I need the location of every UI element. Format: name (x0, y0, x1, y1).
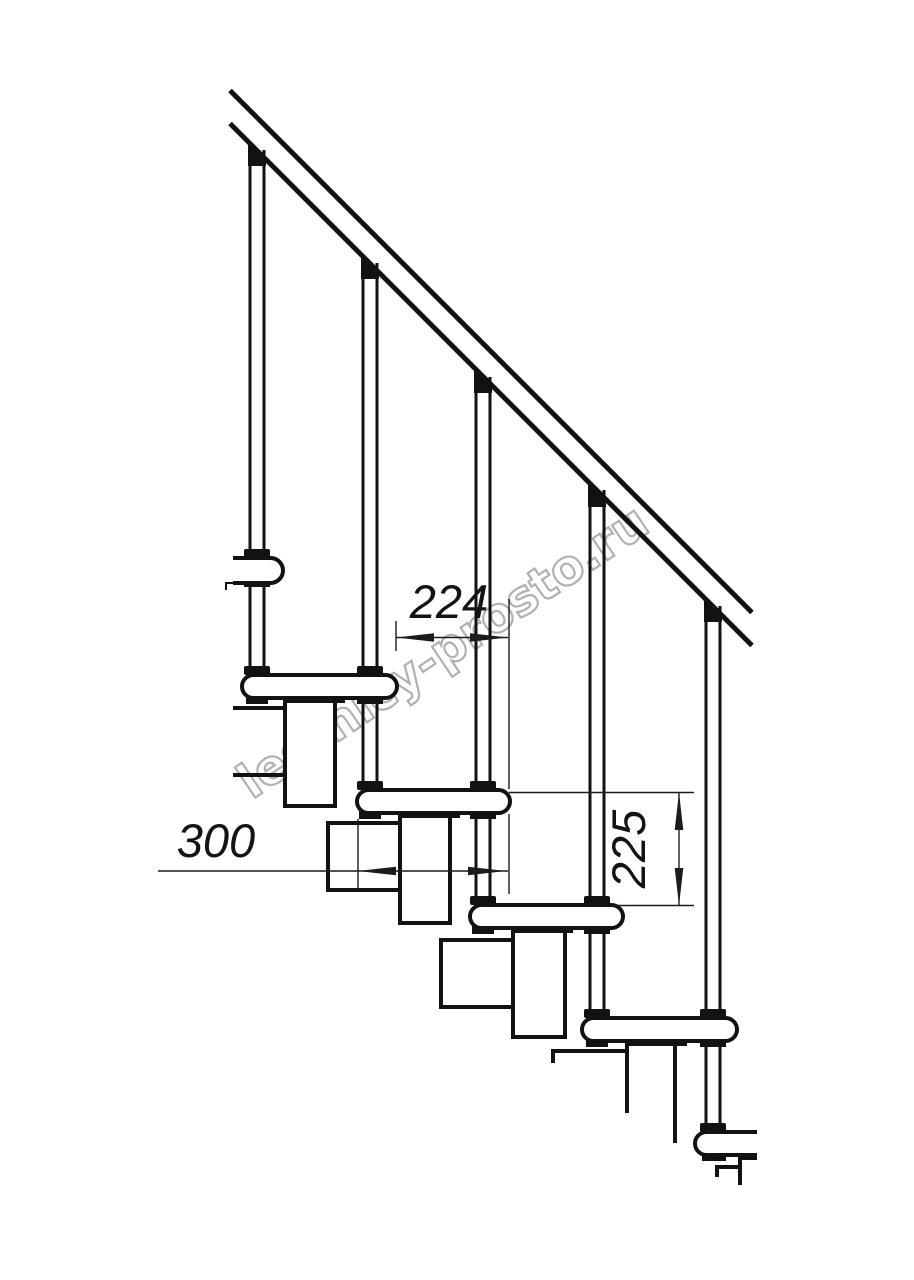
mount-mark (700, 1040, 726, 1047)
mount-mark (627, 1039, 687, 1046)
support-rod (590, 928, 604, 1009)
collar (700, 1009, 726, 1018)
mount-mark (470, 812, 496, 819)
collar (244, 549, 270, 558)
dimension-225: 225 (509, 793, 694, 906)
collar (357, 666, 383, 675)
mount-mark (402, 811, 460, 818)
collar (470, 781, 496, 790)
mount-mark (244, 581, 270, 587)
baluster-2 (363, 263, 377, 666)
tread (470, 905, 623, 928)
mount-mark (357, 697, 383, 704)
mount-mark (515, 926, 573, 933)
drawing-canvas: lestnicy-prosto.ru (0, 0, 914, 1280)
support-rod (476, 813, 490, 896)
module-box (285, 700, 335, 806)
module-box (441, 940, 513, 1007)
tread-top-cut (233, 558, 283, 583)
baluster-1 (250, 150, 264, 549)
stringer-modules (233, 700, 740, 1185)
module-box (400, 815, 450, 923)
mount-mark (359, 811, 381, 819)
module-bracket (553, 1051, 627, 1063)
collar (584, 896, 610, 905)
dim-label-224: 224 (409, 575, 488, 628)
break-notch (226, 583, 233, 590)
mount-mark (586, 1039, 608, 1047)
collar (244, 666, 270, 675)
mount-mark (702, 1153, 726, 1161)
tread (357, 790, 510, 813)
mount-mark (472, 926, 494, 934)
mount-mark (246, 696, 268, 704)
tread (582, 1018, 737, 1041)
baluster-5 (706, 606, 720, 1009)
tread (242, 675, 397, 698)
arrowhead-down (675, 868, 684, 906)
staircase-technical-drawing: lestnicy-prosto.ru (0, 0, 914, 1280)
module-box (513, 930, 565, 1037)
collar (470, 896, 496, 905)
mount-mark (740, 1153, 757, 1160)
collar (584, 1009, 610, 1018)
mount-mark (584, 927, 610, 934)
collar (700, 1123, 726, 1132)
module-bracket (717, 1167, 740, 1177)
arrowhead-up (675, 793, 684, 831)
arrowhead-right (468, 867, 506, 876)
mount-mark (287, 696, 345, 703)
tread-bottom-cut (695, 1132, 757, 1155)
dim-label-225: 225 (602, 809, 655, 889)
collar (357, 781, 383, 790)
support-rod (250, 583, 264, 666)
module-box (328, 823, 400, 890)
support-rod (706, 1041, 720, 1123)
dim-label-300: 300 (177, 814, 255, 867)
